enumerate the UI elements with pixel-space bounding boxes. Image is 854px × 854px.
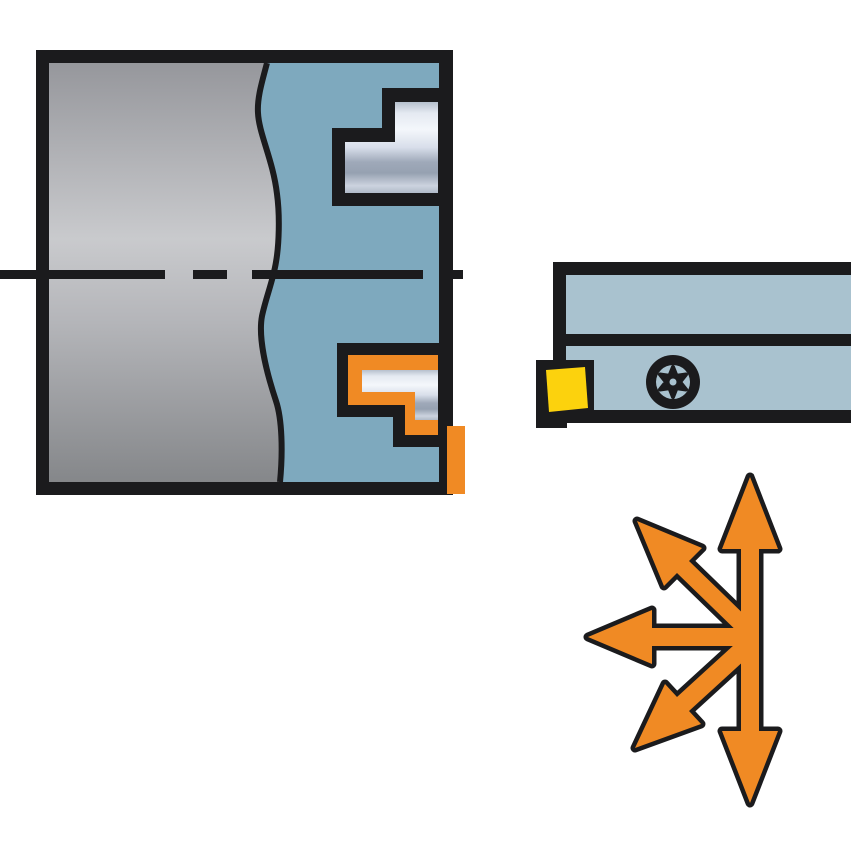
centerline-dash xyxy=(453,270,463,279)
centerline-dash xyxy=(0,270,36,279)
toolholder-upper-band xyxy=(566,275,851,334)
arrows-fill-layer xyxy=(588,477,778,803)
torx-screw-icon xyxy=(646,355,700,409)
toolholder-figure xyxy=(536,262,851,428)
illustration-canvas xyxy=(0,0,854,854)
insert-corner-orange xyxy=(447,426,465,494)
machining-diagram xyxy=(0,0,854,854)
toolholder-lower-band xyxy=(566,346,851,410)
centerline-dash xyxy=(252,270,423,279)
workpiece-figure xyxy=(0,50,465,495)
centerline-dash xyxy=(193,270,227,279)
centerline-dash xyxy=(47,270,165,279)
feed-direction-arrows xyxy=(588,477,778,803)
cutting-insert xyxy=(546,367,588,412)
torx-star-center xyxy=(670,379,677,386)
